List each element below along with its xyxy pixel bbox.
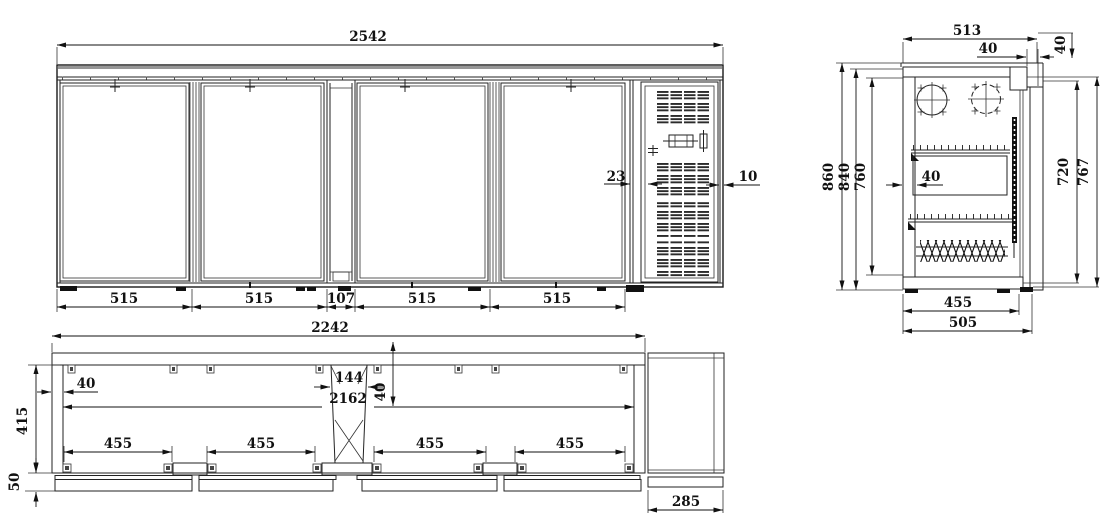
dim-side-base-depth: 505: [949, 315, 977, 331]
louver-block-mid2: [657, 202, 711, 238]
shelf-peg-rail: [1012, 117, 1017, 258]
center-mullion: [327, 80, 355, 283]
plan-machine-dim: 285: [648, 490, 723, 513]
dim-plan-interior-length: 2162: [329, 391, 367, 407]
fan-right: [968, 81, 1004, 117]
plan-left-wall: [52, 365, 63, 473]
dim-door3-width: 515: [408, 291, 436, 307]
louver-block-top: [657, 90, 711, 126]
panel-screw-icon: [648, 145, 658, 156]
dim-plan-opening-3: 455: [416, 436, 444, 452]
vent-grille-panel: [641, 82, 718, 282]
dim-front-overall-width: 2542: [349, 29, 387, 45]
door-handle-4-icon: [566, 79, 576, 92]
door-section: [1020, 87, 1043, 292]
dim-door1-width: 515: [110, 291, 138, 307]
dim-side-door-inner-height: 720: [1056, 158, 1072, 186]
side-door-height-dims: 720 767: [1023, 77, 1099, 287]
dim-side-interior-height: 760: [853, 163, 869, 191]
dim-door4-width: 515: [543, 291, 571, 307]
dim-plan-body-length: 2242: [311, 320, 349, 336]
side-top-corner-block: [1010, 67, 1027, 90]
bottle-rack: [916, 240, 1008, 262]
dim-side-door-outer-height: 767: [1076, 158, 1092, 186]
plan-offset-dim: 40: [373, 342, 393, 406]
dim-plan-opening-1: 455: [104, 436, 132, 452]
side-inner-front-face: [1020, 90, 1023, 277]
plan-length-dim: 2242: [52, 320, 645, 352]
dim-side-door-thickness: 40: [979, 41, 998, 57]
dim-vent-edge: 10: [739, 169, 758, 185]
engineering-drawing-canvas: 2542: [0, 0, 1113, 515]
dim-side-overall-depth: 513: [953, 23, 981, 39]
side-height-dims: 860 840 760: [821, 63, 903, 290]
door-handle-2-icon: [245, 79, 255, 92]
side-bottom-wall: [903, 277, 1023, 289]
plan-door-leaves: [55, 476, 641, 492]
side-view: 513 40 40: [821, 23, 1099, 334]
side-feet: [905, 289, 1010, 293]
switch-symbol-icon: [663, 130, 707, 152]
dim-mullion-width: 107: [327, 291, 355, 307]
dim-plan-mullion-width: 144: [335, 370, 363, 386]
plan-wall-thickness-dim: 40: [37, 376, 98, 392]
dim-plan-interior-depth: 415: [15, 407, 31, 435]
hinge-strip-1: [190, 82, 199, 282]
door-1: [60, 83, 189, 281]
counter-edge-band: [58, 66, 722, 69]
plan-back-wall: [52, 353, 645, 365]
shelf-2: [908, 217, 1012, 231]
panel-divider: [630, 80, 633, 283]
dim-side-wall-thickness: 40: [922, 169, 941, 185]
dim-plan-front-offset: 50: [7, 473, 23, 492]
dim-vent-gap: 23: [607, 169, 626, 185]
louver-block-bottom: [657, 241, 711, 277]
front-view: 2542: [57, 29, 760, 312]
dim-side-top-offset: 40: [1053, 36, 1069, 55]
plan-opening-dims: 455 455 455 455: [64, 436, 625, 462]
dim-door2-width: 515: [245, 291, 273, 307]
dim-side-cabinet-height: 840: [837, 163, 853, 191]
fan-left: [914, 82, 950, 118]
door-2: [201, 83, 324, 281]
dim-side-interior-depth: 455: [944, 295, 972, 311]
side-top-wall: [903, 67, 1010, 77]
plan-interior-dim: 2162: [63, 391, 634, 407]
front-dim-overall: 2542: [57, 29, 723, 64]
front-bottom-dims: 515 515 107 515 515: [57, 289, 625, 312]
side-depth-dims: 455 505: [903, 294, 1032, 334]
plan-right-wall: [634, 365, 645, 473]
door-handle-1-icon: [110, 79, 120, 92]
plan-view: 2242 144 2162 40: [7, 320, 724, 513]
dim-plan-wall-thickness: 40: [77, 376, 96, 392]
dim-plan-opening-4: 455: [556, 436, 584, 452]
cooler-three-view-drawing: 2542: [0, 0, 1113, 515]
door-3: [357, 83, 488, 281]
dim-plan-machine-depth: 285: [672, 494, 700, 510]
dim-side-overall-height: 860: [821, 163, 837, 191]
hinge-strip-2: [490, 82, 499, 282]
shelf-1: [911, 148, 1010, 162]
dim-plan-offset: 40: [373, 383, 389, 402]
dim-plan-opening-2: 455: [247, 436, 275, 452]
door-handle-3-icon: [400, 79, 410, 92]
louver-block-mid1: [657, 163, 711, 199]
compressor-compartment: [648, 353, 724, 487]
